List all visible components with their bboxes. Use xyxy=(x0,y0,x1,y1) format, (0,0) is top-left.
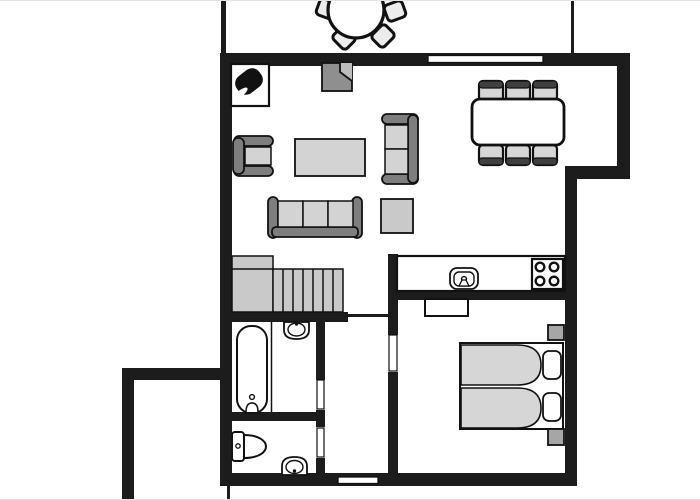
stove xyxy=(532,259,563,289)
tv-unit xyxy=(322,63,352,91)
toilet xyxy=(232,432,266,461)
side-table xyxy=(381,199,413,233)
toilet-sink xyxy=(282,457,307,475)
kitchen-sink xyxy=(450,268,478,289)
bedroom-dresser xyxy=(425,299,468,316)
loveseat xyxy=(382,114,418,184)
armchair xyxy=(233,136,273,176)
dining-set xyxy=(472,81,564,165)
toilet-door xyxy=(317,428,324,457)
coffee-table xyxy=(295,139,365,176)
bathroom-sink xyxy=(284,322,309,339)
bathtub xyxy=(237,326,267,413)
floor-plan xyxy=(0,0,700,500)
double-bed xyxy=(460,343,563,429)
sofa xyxy=(268,197,362,238)
annex-walls xyxy=(122,368,226,500)
bathroom-door xyxy=(317,380,324,409)
nightstand-top xyxy=(548,325,564,340)
entry-door xyxy=(338,477,378,484)
balcony-window xyxy=(428,56,543,63)
hallway-opening xyxy=(348,314,388,317)
floor-plan-svg xyxy=(0,1,700,500)
wood-stove xyxy=(231,64,269,106)
staircase xyxy=(232,256,343,312)
balcony-dining-set xyxy=(315,1,407,51)
nightstand-bottom xyxy=(548,429,564,445)
bedroom-door xyxy=(389,335,397,371)
